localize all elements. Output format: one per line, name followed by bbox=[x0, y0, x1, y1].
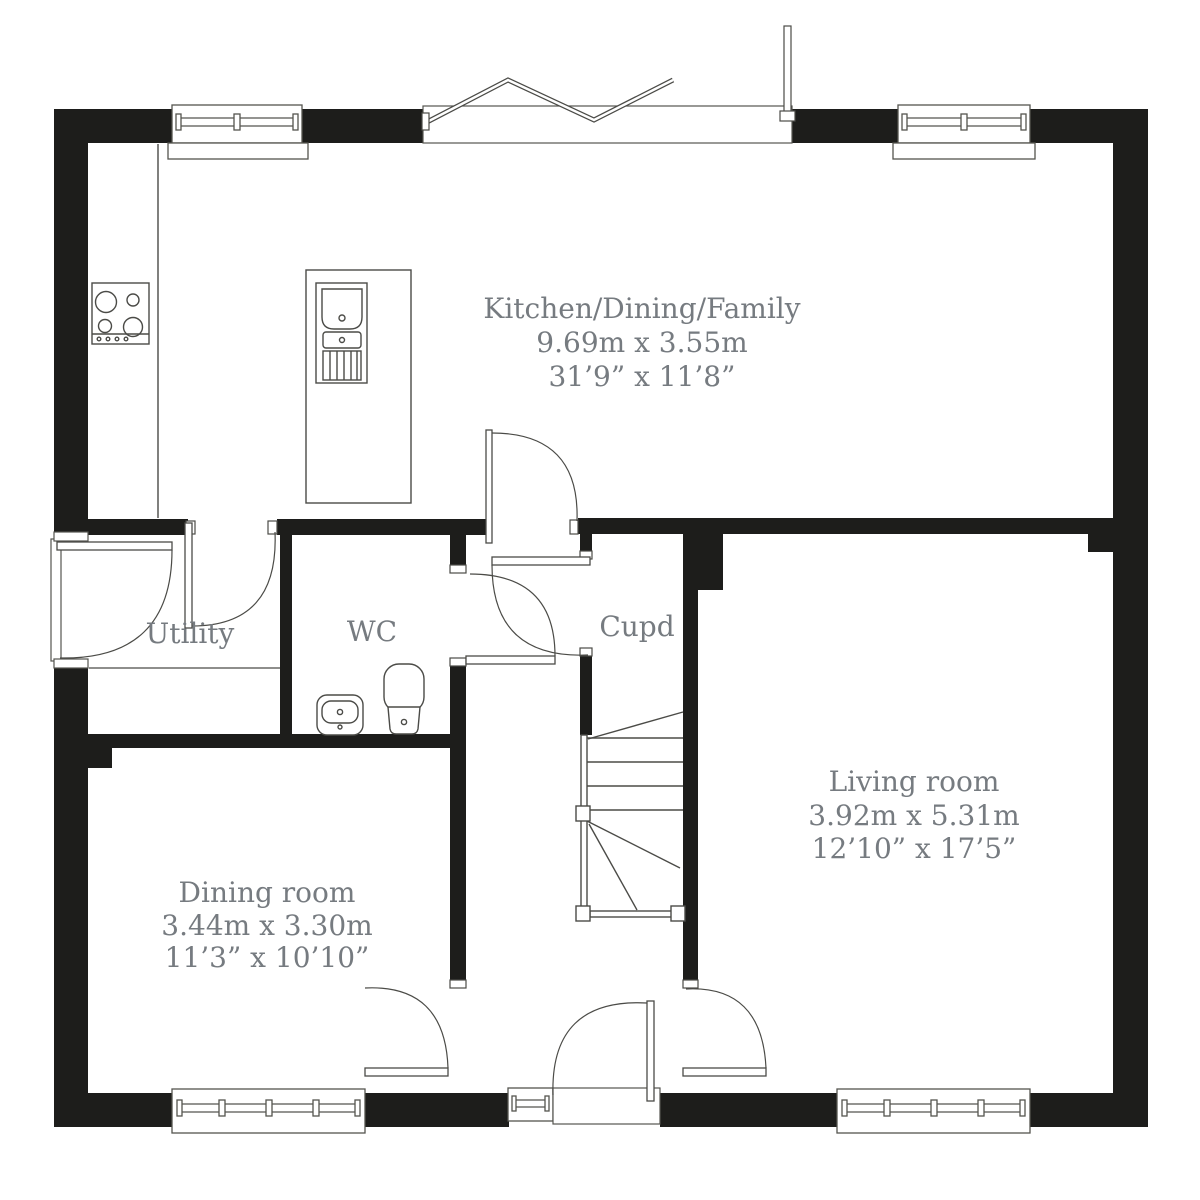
window-kitchen-left bbox=[168, 105, 308, 159]
room-label-utility: Utility bbox=[146, 617, 235, 650]
window-kitchen-right bbox=[893, 105, 1035, 159]
floor-plan: Kitchen/Dining/Family 9.69m x 3.55m 31’9… bbox=[0, 0, 1200, 1200]
room-dims-living-metric: 3.92m x 5.31m bbox=[808, 799, 1019, 832]
cupboard-door bbox=[492, 557, 590, 655]
room-dims-dining-imperial: 11’3” x 10’10” bbox=[165, 941, 370, 974]
island-sink bbox=[316, 283, 367, 383]
staircase bbox=[576, 712, 685, 921]
wash-basin bbox=[317, 695, 363, 735]
toilet bbox=[384, 664, 424, 734]
room-label-dining: Dining room bbox=[179, 876, 356, 909]
room-label-cupd: Cupd bbox=[599, 610, 674, 643]
room-label-living: Living room bbox=[829, 765, 1000, 798]
dining-room-door bbox=[365, 988, 448, 1076]
window-sidelight bbox=[508, 1088, 553, 1121]
kitchen-hall-door bbox=[486, 430, 577, 543]
wc-door bbox=[466, 574, 555, 664]
utility-door bbox=[185, 523, 275, 628]
window-dining bbox=[172, 1089, 365, 1133]
room-dims-kitchen-imperial: 31’9” x 11’8” bbox=[549, 360, 736, 393]
hob bbox=[92, 283, 149, 344]
front-door bbox=[553, 1001, 660, 1124]
room-dims-kitchen-metric: 9.69m x 3.55m bbox=[536, 326, 747, 359]
room-dims-dining-metric: 3.44m x 3.30m bbox=[161, 909, 372, 942]
window-living bbox=[837, 1089, 1030, 1133]
bifold-doors bbox=[422, 26, 795, 143]
floor-plan-page: Kitchen/Dining/Family 9.69m x 3.55m 31’9… bbox=[0, 0, 1200, 1200]
living-room-door bbox=[683, 989, 766, 1076]
room-label-kitchen: Kitchen/Dining/Family bbox=[483, 292, 800, 325]
room-label-wc: WC bbox=[347, 615, 397, 648]
room-dims-living-imperial: 12’10” x 17’5” bbox=[812, 832, 1017, 865]
